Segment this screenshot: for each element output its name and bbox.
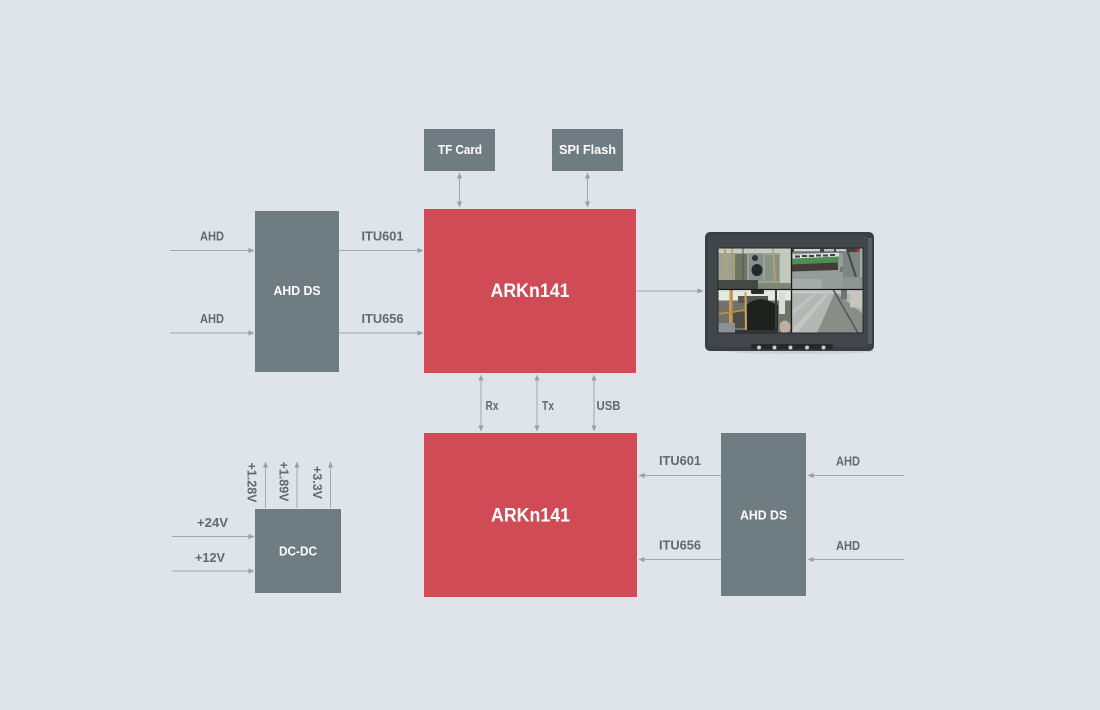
svg-text:Rx: Rx [486,398,500,413]
svg-text:ITU601: ITU601 [659,453,701,468]
svg-text:USB: USB [597,398,621,413]
svg-text:ITU656: ITU656 [362,311,404,326]
svg-text:ITU601: ITU601 [362,229,404,244]
svg-text:TF Card: TF Card [438,143,482,157]
svg-text:ARKn141: ARKn141 [491,506,570,527]
svg-text:+1.28V: +1.28V [245,463,260,503]
svg-text:+24V: +24V [197,515,228,530]
svg-text:+1.89V: +1.89V [277,462,292,502]
svg-text:AHD: AHD [836,454,860,469]
svg-text:DC-DC: DC-DC [279,545,317,559]
svg-text:AHD DS: AHD DS [274,284,321,298]
svg-text:ITU656: ITU656 [659,538,701,553]
svg-text:AHD: AHD [836,538,860,553]
svg-text:AHD DS: AHD DS [740,509,787,523]
svg-text:Tx: Tx [542,398,555,413]
svg-text:AHD: AHD [200,229,224,244]
svg-text:+3.3V: +3.3V [310,466,325,499]
svg-text:SPI Flash: SPI Flash [559,143,616,157]
svg-text:ARKn141: ARKn141 [491,281,570,302]
svg-text:+12V: +12V [195,550,225,565]
svg-text:AHD: AHD [200,311,224,326]
